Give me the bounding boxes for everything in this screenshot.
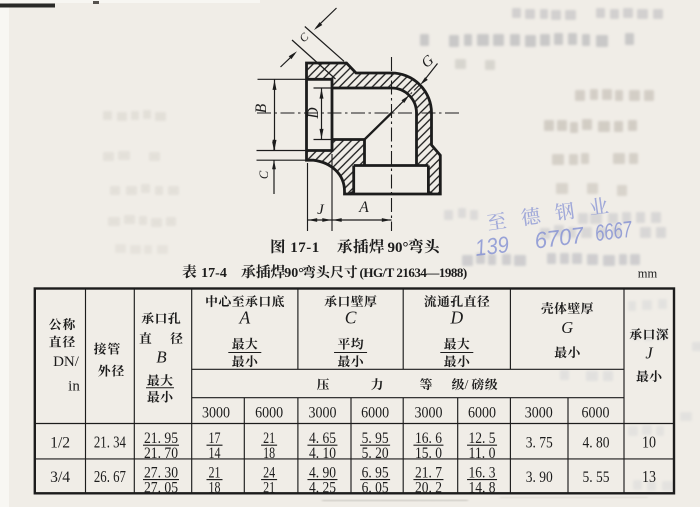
svg-text:6667: 6667 <box>593 216 634 246</box>
svg-text:3000: 3000 <box>202 405 230 422</box>
svg-text:5. 20: 5. 20 <box>362 445 389 462</box>
svg-text:17-1: 17-1 <box>290 240 320 256</box>
svg-text:3. 75: 3. 75 <box>526 435 553 452</box>
svg-text:3. 90: 3. 90 <box>526 469 553 486</box>
svg-text:6. 05: 6. 05 <box>362 479 389 496</box>
svg-text:21. 34: 21. 34 <box>94 433 126 452</box>
svg-text:D: D <box>449 308 463 328</box>
svg-text:90°: 90° <box>388 240 409 256</box>
svg-text:6000: 6000 <box>361 405 389 422</box>
svg-text:90°: 90° <box>284 266 304 281</box>
svg-text:DN/: DN/ <box>53 354 80 370</box>
svg-text:J: J <box>645 344 653 363</box>
svg-text:10: 10 <box>642 433 656 452</box>
svg-text:4. 10: 4. 10 <box>309 445 336 462</box>
svg-text:D: D <box>305 107 322 119</box>
svg-text:G: G <box>561 318 573 337</box>
svg-text:C: C <box>257 170 271 179</box>
svg-text:21: 21 <box>263 479 275 496</box>
svg-text:3000: 3000 <box>414 405 442 422</box>
svg-text:3000: 3000 <box>525 405 553 422</box>
svg-text:/: / <box>465 378 469 393</box>
svg-text:15. 0: 15. 0 <box>415 445 442 462</box>
svg-text:B: B <box>156 348 167 367</box>
svg-text:13: 13 <box>642 467 656 486</box>
svg-text:4. 25: 4. 25 <box>309 479 336 496</box>
svg-text:14: 14 <box>209 445 221 462</box>
svg-text:5. 55: 5. 55 <box>583 469 610 486</box>
svg-text:27. 05: 27. 05 <box>144 479 178 496</box>
svg-text:139: 139 <box>473 231 510 261</box>
svg-text:11. 0: 11. 0 <box>469 445 496 462</box>
svg-text:4. 80: 4. 80 <box>583 435 610 452</box>
svg-text:3000: 3000 <box>308 405 336 422</box>
svg-text:21. 70: 21. 70 <box>144 445 178 462</box>
svg-text:1/2: 1/2 <box>50 435 70 452</box>
svg-text:14. 8: 14. 8 <box>469 479 496 496</box>
svg-text:A: A <box>238 308 250 328</box>
svg-text:6000: 6000 <box>255 405 283 422</box>
svg-text:mm: mm <box>638 267 658 281</box>
svg-text:26. 67: 26. 67 <box>94 467 126 486</box>
svg-text:(HG/T 21634—1988): (HG/T 21634—1988) <box>360 265 467 280</box>
svg-text:18: 18 <box>209 479 221 496</box>
svg-text:17-4: 17-4 <box>201 266 227 281</box>
svg-text:20. 2: 20. 2 <box>415 479 442 496</box>
svg-text:6000: 6000 <box>468 405 496 422</box>
svg-text:A: A <box>358 199 369 216</box>
svg-text:B: B <box>253 103 270 113</box>
svg-text:18: 18 <box>263 445 275 462</box>
svg-text:6000: 6000 <box>582 405 610 422</box>
svg-text:C: C <box>345 308 357 328</box>
svg-text:3/4: 3/4 <box>50 469 70 486</box>
svg-text:in: in <box>68 379 80 395</box>
